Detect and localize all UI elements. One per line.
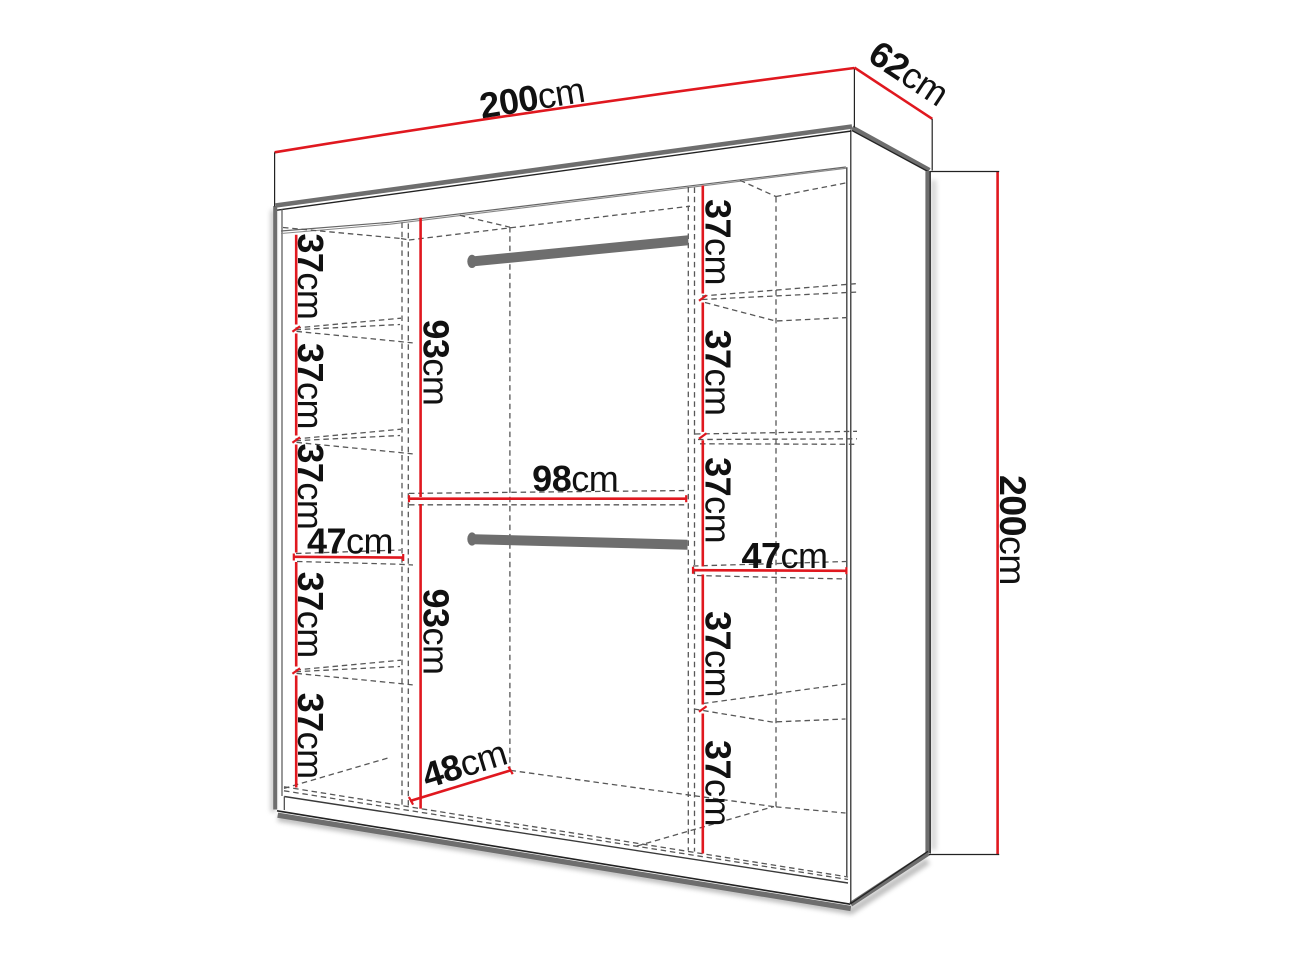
svg-text:93cm: 93cm [415,588,456,674]
svg-text:37cm: 37cm [290,572,331,658]
svg-text:37cm: 37cm [290,693,331,779]
svg-text:200cm: 200cm [992,475,1034,585]
svg-text:37cm: 37cm [698,329,739,415]
svg-text:37cm: 37cm [698,199,739,285]
svg-text:37cm: 37cm [290,343,331,429]
svg-text:37cm: 37cm [290,443,331,529]
svg-text:37cm: 37cm [698,457,739,543]
svg-text:47cm: 47cm [741,535,827,576]
svg-text:37cm: 37cm [290,233,331,319]
svg-text:93cm: 93cm [415,319,456,405]
svg-text:37cm: 37cm [698,740,739,826]
svg-text:37cm: 37cm [698,611,739,697]
svg-text:47cm: 47cm [307,520,393,561]
svg-text:98cm: 98cm [532,458,618,499]
